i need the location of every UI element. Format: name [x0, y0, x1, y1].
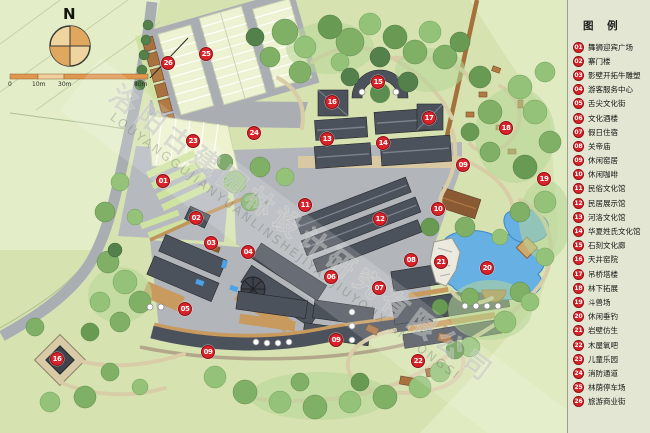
legend-item-number: 01: [573, 42, 584, 53]
legend-item: 01舞狮迎宾广场: [573, 40, 650, 54]
legend-item: 02寨门楼: [573, 54, 650, 68]
legend-item-number: 23: [573, 354, 584, 365]
legend-item-number: 06: [573, 113, 584, 124]
legend-item: 26旅游商业街: [573, 395, 650, 409]
map-marker-07: 07: [372, 281, 386, 295]
map-marker-08: 08: [404, 253, 418, 267]
legend-item: 07假日住宿: [573, 125, 650, 139]
map-marker-09: 09: [329, 333, 343, 347]
legend-item-number: 11: [573, 183, 584, 194]
legend-item-number: 13: [573, 212, 584, 223]
legend-item: 06文化酒楼: [573, 111, 650, 125]
map-marker-19: 19: [537, 172, 551, 186]
map-marker-12: 12: [373, 212, 387, 226]
legend-item-number: 24: [573, 368, 584, 379]
legend-item: 23儿童乐园: [573, 352, 650, 366]
legend-item: 24消防通道: [573, 366, 650, 380]
legend-item-number: 12: [573, 198, 584, 209]
legend-item-number: 17: [573, 269, 584, 280]
legend-item-label: 民居展示馆: [588, 198, 626, 209]
legend-item-label: 民俗文化馆: [588, 183, 626, 194]
legend-item-number: 04: [573, 84, 584, 95]
legend-item-number: 07: [573, 127, 584, 138]
legend-item-label: 林下拓展: [588, 283, 618, 294]
legend-item-number: 05: [573, 98, 584, 109]
legend-item-number: 14: [573, 226, 584, 237]
map-marker-04: 04: [241, 245, 255, 259]
legend-item-number: 09: [573, 155, 584, 166]
legend-item-label: 消防通道: [588, 368, 618, 379]
legend-item-number: 20: [573, 311, 584, 322]
legend-item-label: 文化酒楼: [588, 113, 618, 124]
legend-item-label: 林荫停车场: [588, 382, 626, 393]
map-marker-06: 06: [324, 270, 338, 284]
legend-item-label: 华夏姓氏文化馆: [588, 226, 641, 237]
legend-item-label: 休闲咖啡: [588, 169, 618, 180]
legend-item: 22木屋氧吧: [573, 338, 650, 352]
north-label: N: [63, 5, 76, 23]
legend-item-number: 25: [573, 382, 584, 393]
map-marker-14: 14: [376, 136, 390, 150]
legend-item: 13河洛文化馆: [573, 210, 650, 224]
legend-item-label: 斗兽场: [588, 297, 611, 308]
site-plan-page: 洛阳古建园林设计研究有限公司 LOUYANGGUJIANYUANLINSHEJI…: [0, 0, 650, 433]
legend-item: 14华夏姓氏文化馆: [573, 224, 650, 238]
map-marker-25: 25: [199, 47, 213, 61]
legend-item-label: 寨门楼: [588, 56, 611, 67]
legend-item: 25林荫停车场: [573, 381, 650, 395]
legend-item-number: 15: [573, 240, 584, 251]
legend-item-label: 岩壁仿生: [588, 325, 618, 336]
legend-item-number: 21: [573, 325, 584, 336]
legend-item-label: 旅游商业街: [588, 396, 626, 407]
legend-item: 05舌尖文化街: [573, 97, 650, 111]
map-marker-09: 09: [456, 158, 470, 172]
legend-item-label: 河洛文化馆: [588, 212, 626, 223]
map-marker-21: 21: [434, 255, 448, 269]
map-marker-22: 22: [411, 354, 425, 368]
legend-item-label: 休闲垂钓: [588, 311, 618, 322]
legend-item: 18林下拓展: [573, 281, 650, 295]
legend-panel: 图 例 01舞狮迎宾广场02寨门楼03影壁开拓牛雕塑04游客服务中心05舌尖文化…: [567, 0, 650, 433]
legend-item: 16天井窑院: [573, 253, 650, 267]
legend-item-label: 假日住宿: [588, 127, 618, 138]
legend-item-number: 16: [573, 254, 584, 265]
map-marker-09: 09: [201, 345, 215, 359]
legend-item: 21岩壁仿生: [573, 324, 650, 338]
legend-item-label: 石刻文化廊: [588, 240, 626, 251]
legend-item-label: 天井窑院: [588, 254, 618, 265]
legend-list: 01舞狮迎宾广场02寨门楼03影壁开拓牛雕塑04游客服务中心05舌尖文化街06文…: [573, 40, 650, 409]
legend-item-number: 02: [573, 56, 584, 67]
legend-item: 08关帝庙: [573, 139, 650, 153]
legend-item: 15石刻文化廊: [573, 239, 650, 253]
map-marker-26: 26: [161, 56, 175, 70]
legend-item: 09休闲窑居: [573, 154, 650, 168]
map-marker-16: 16: [325, 95, 339, 109]
legend-item-number: 18: [573, 283, 584, 294]
legend-item: 12民居展示馆: [573, 196, 650, 210]
legend-item-number: 26: [573, 396, 584, 407]
legend-item-number: 08: [573, 141, 584, 152]
legend-item-label: 影壁开拓牛雕塑: [588, 70, 641, 81]
scale-tick: 10m: [32, 81, 45, 88]
scale-tick: 0: [8, 81, 12, 88]
map-marker-10: 10: [431, 202, 445, 216]
legend-item: 17吊桥塔楼: [573, 267, 650, 281]
legend-item: 11民俗文化馆: [573, 182, 650, 196]
legend-item-label: 舌尖文化街: [588, 98, 626, 109]
legend-item-label: 木屋氧吧: [588, 340, 618, 351]
legend-item: 04游客服务中心: [573, 83, 650, 97]
legend-item-label: 关帝庙: [588, 141, 611, 152]
map-marker-20: 20: [480, 261, 494, 275]
legend-item-number: 22: [573, 340, 584, 351]
legend-item: 10休闲咖啡: [573, 168, 650, 182]
legend-title: 图 例: [583, 18, 650, 33]
map-marker-05: 05: [178, 302, 192, 316]
map-marker-02: 02: [189, 211, 203, 225]
map-marker-11: 11: [298, 198, 312, 212]
legend-item-number: 19: [573, 297, 584, 308]
legend-item-label: 舞狮迎宾广场: [588, 42, 633, 53]
legend-item: 19斗兽场: [573, 295, 650, 309]
legend-item: 20休闲垂钓: [573, 310, 650, 324]
map-marker-24: 24: [247, 126, 261, 140]
legend-item-label: 吊桥塔楼: [588, 269, 618, 280]
scale-tick: 80m: [134, 81, 147, 88]
legend-item-number: 03: [573, 70, 584, 81]
legend-item-label: 游客服务中心: [588, 84, 633, 95]
map-marker-13: 13: [320, 132, 334, 146]
legend-item-label: 休闲窑居: [588, 155, 618, 166]
map-marker-18: 18: [499, 121, 513, 135]
map-marker-01: 01: [156, 174, 170, 188]
scale-tick: 30m: [58, 81, 71, 88]
map-marker-23: 23: [186, 134, 200, 148]
legend-item-number: 10: [573, 169, 584, 180]
map-markers-layer: 0102030405060708090909101112131415161617…: [0, 0, 567, 433]
map-marker-03: 03: [204, 236, 218, 250]
map-marker-17: 17: [422, 111, 436, 125]
map-marker-15: 15: [371, 75, 385, 89]
map-marker-16: 16: [50, 352, 64, 366]
legend-item-label: 儿童乐园: [588, 354, 618, 365]
legend-item: 03影壁开拓牛雕塑: [573, 68, 650, 82]
